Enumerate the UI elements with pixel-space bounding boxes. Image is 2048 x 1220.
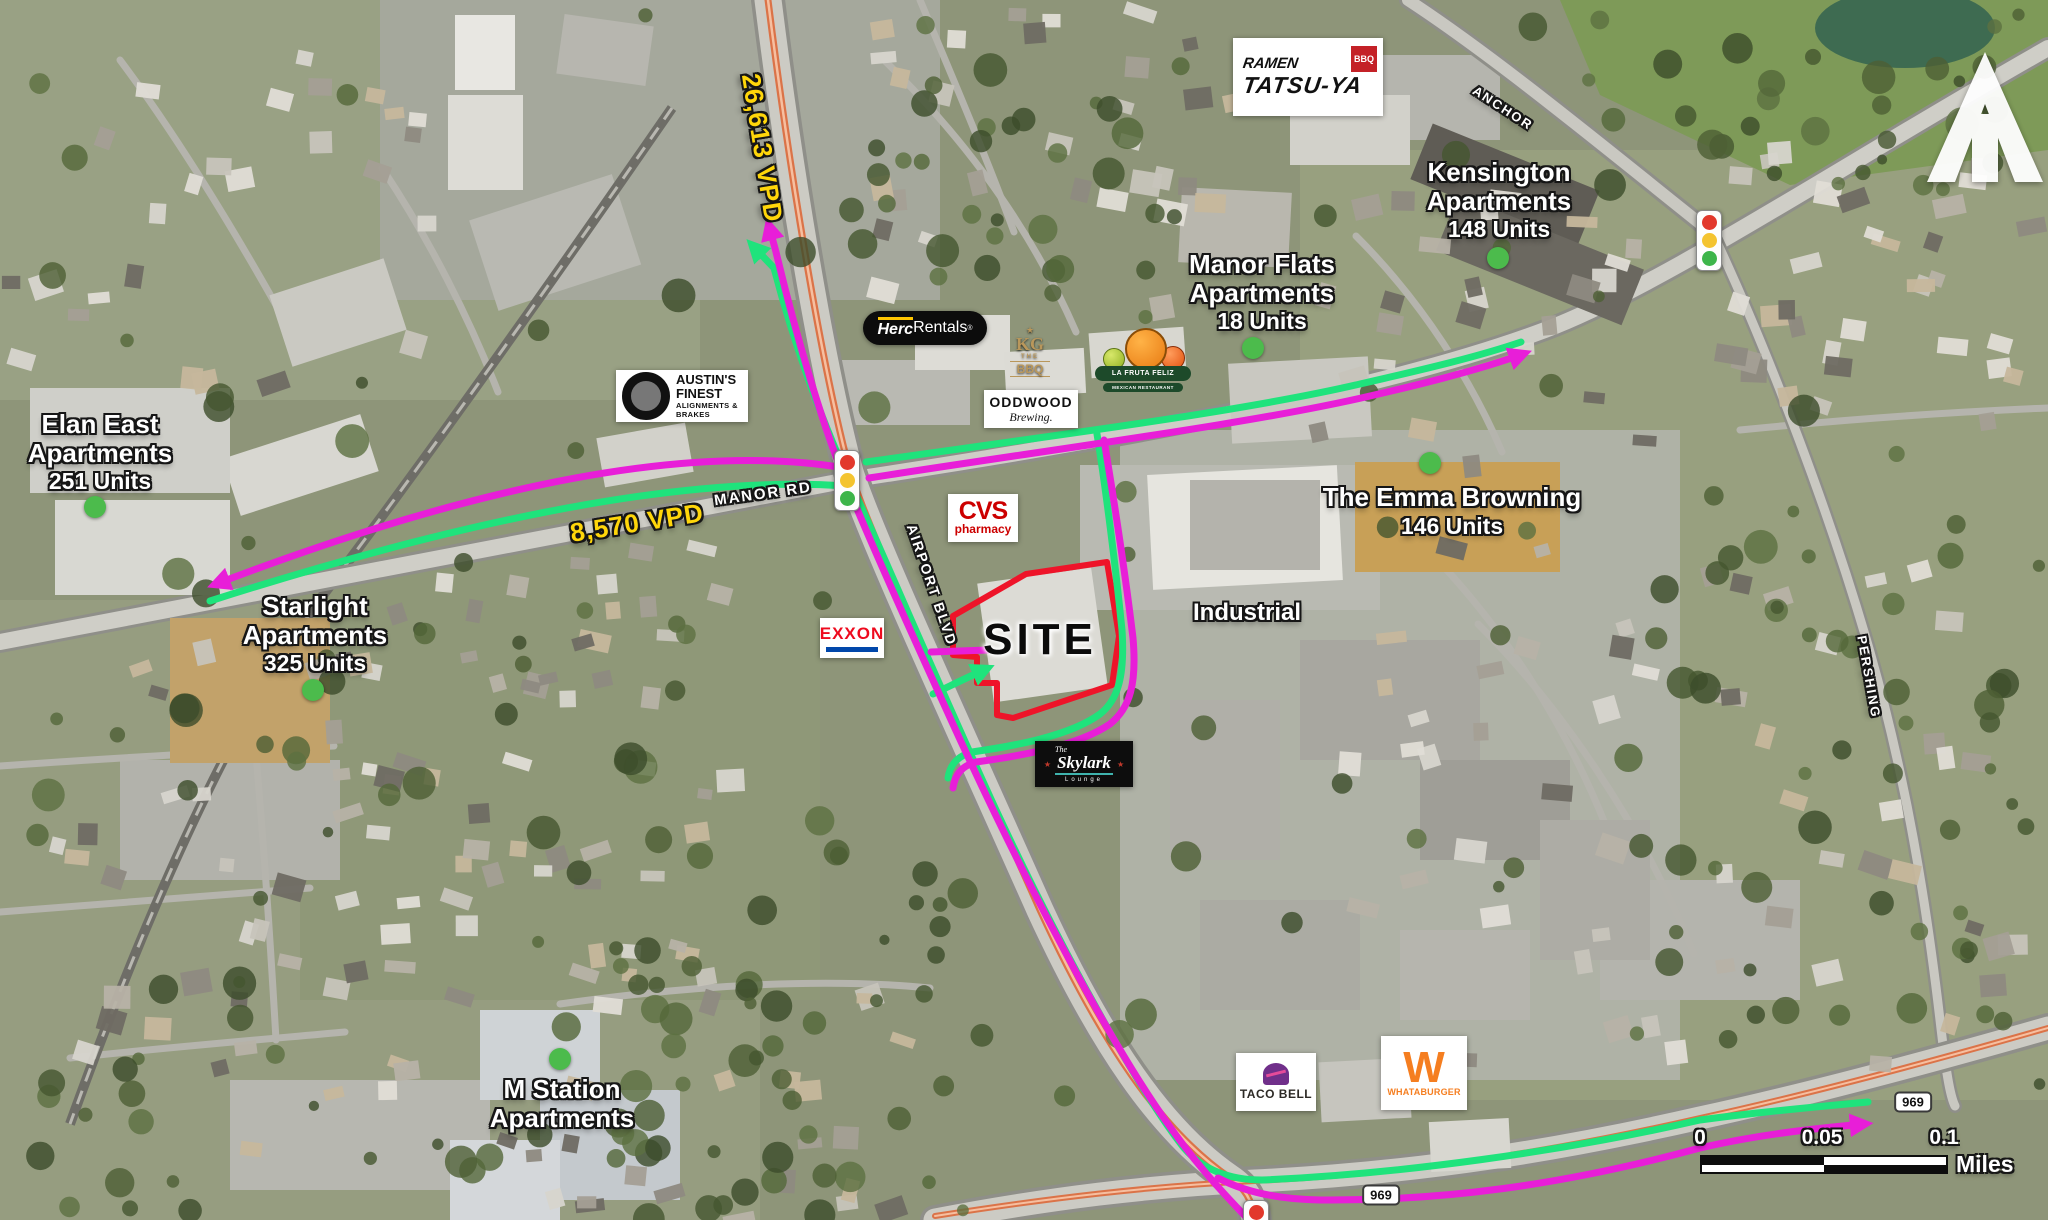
satellite-map-artwork (0, 0, 2048, 1220)
aerial-site-map: 26,613 VPD 8,570 VPD MANOR RD AIRPORT BL… (0, 0, 2048, 1220)
